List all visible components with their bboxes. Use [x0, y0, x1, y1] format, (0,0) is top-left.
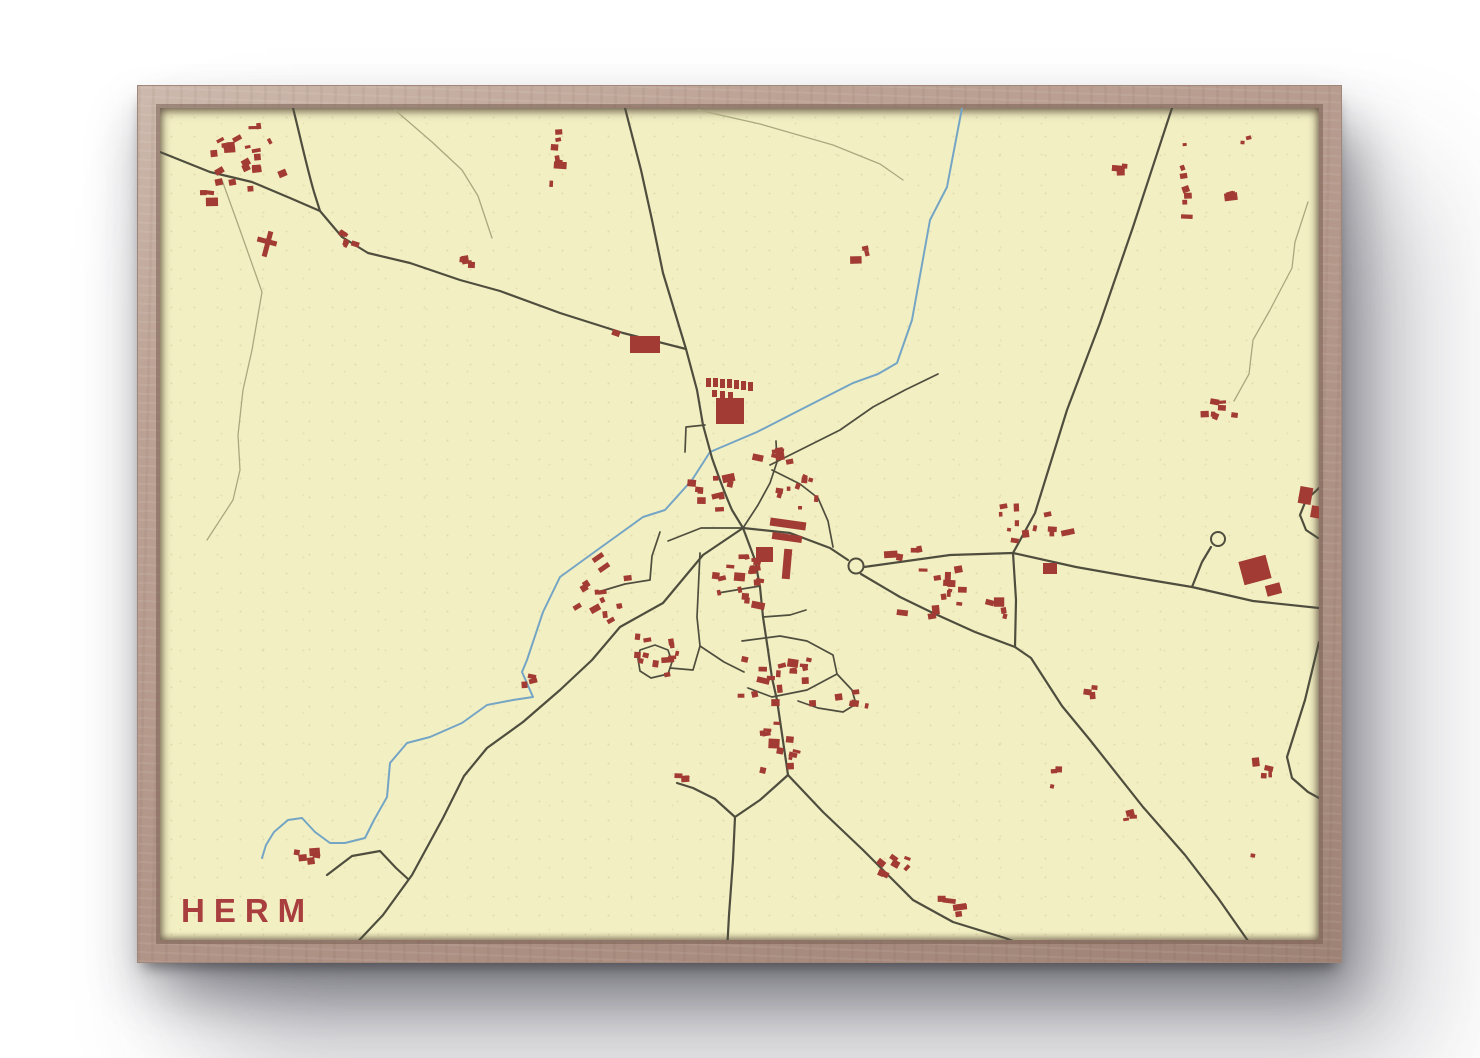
- building: [1298, 486, 1314, 505]
- building: [687, 479, 696, 487]
- building: [720, 391, 725, 398]
- building: [206, 197, 218, 206]
- building: [933, 575, 941, 581]
- building: [748, 382, 753, 391]
- building: [802, 677, 809, 684]
- building: [903, 864, 910, 871]
- building: [555, 129, 562, 135]
- building: [664, 672, 671, 677]
- building: [809, 700, 816, 707]
- main-road: [1013, 553, 1016, 647]
- building: [734, 380, 739, 389]
- building: [748, 570, 756, 574]
- building: [741, 593, 749, 600]
- building: [713, 378, 718, 387]
- building: [1181, 185, 1190, 193]
- building: [598, 562, 611, 573]
- village-street: [763, 610, 806, 617]
- building: [554, 161, 567, 169]
- building: [675, 651, 680, 657]
- building: [954, 565, 963, 573]
- building: [551, 144, 559, 151]
- building: [947, 590, 951, 597]
- building: [958, 587, 967, 593]
- minor-path: [207, 180, 262, 540]
- building: [741, 656, 749, 663]
- building: [1184, 193, 1192, 199]
- building: [786, 459, 794, 465]
- main-road: [625, 108, 743, 528]
- building: [713, 476, 719, 481]
- building: [896, 553, 903, 561]
- poster-frame: HERM: [137, 85, 1342, 963]
- building: [254, 153, 261, 160]
- building: [681, 775, 690, 782]
- building: [896, 609, 908, 616]
- building: [911, 548, 918, 553]
- minor-path: [1008, 939, 1168, 940]
- building: [773, 722, 780, 725]
- building: [741, 381, 746, 390]
- main-road: [1013, 108, 1172, 553]
- building: [1123, 817, 1129, 821]
- building: [216, 137, 224, 144]
- main-road: [327, 851, 408, 879]
- building: [245, 145, 251, 149]
- building: [351, 240, 360, 247]
- building: [1014, 503, 1020, 511]
- building: [928, 613, 937, 620]
- building: [850, 256, 862, 264]
- main-road: [677, 783, 735, 817]
- building: [1022, 530, 1030, 538]
- building: [1032, 525, 1037, 532]
- building: [835, 693, 843, 701]
- village-street: [697, 553, 744, 672]
- building: [776, 670, 781, 677]
- roundabout: [849, 559, 864, 574]
- building: [941, 593, 947, 600]
- building: [602, 611, 608, 618]
- building: [1043, 563, 1057, 574]
- building: [643, 637, 651, 642]
- building: [1231, 412, 1238, 418]
- building: [1182, 200, 1187, 205]
- building: [938, 896, 946, 902]
- building: [599, 597, 605, 604]
- building: [1180, 165, 1186, 171]
- town-map: [160, 108, 1319, 940]
- map-poster: HERM: [160, 108, 1319, 940]
- building: [1050, 784, 1055, 789]
- poster-title: HERM: [181, 894, 314, 927]
- building: [985, 599, 995, 607]
- building: [717, 590, 722, 596]
- building: [737, 586, 742, 593]
- building: [1240, 141, 1244, 145]
- building: [247, 186, 253, 192]
- building: [528, 673, 537, 679]
- building: [798, 506, 802, 510]
- building: [549, 181, 553, 187]
- building: [1122, 164, 1128, 169]
- building: [232, 134, 242, 143]
- building: [1218, 405, 1226, 411]
- building: [771, 699, 779, 706]
- river: [262, 108, 962, 858]
- building: [782, 549, 793, 580]
- building: [1310, 505, 1319, 519]
- building: [1180, 173, 1188, 179]
- building: [814, 495, 819, 502]
- building: [852, 689, 859, 694]
- building: [806, 657, 812, 662]
- village-street: [598, 532, 660, 592]
- building: [294, 849, 300, 855]
- main-road: [293, 108, 320, 211]
- minor-path: [698, 110, 903, 180]
- building: [1200, 411, 1208, 418]
- village-street: [685, 425, 705, 452]
- building: [1083, 689, 1092, 696]
- building: [770, 518, 807, 531]
- building: [554, 155, 560, 162]
- building: [572, 603, 581, 611]
- building: [606, 617, 615, 625]
- building: [1001, 607, 1007, 614]
- building: [790, 668, 797, 674]
- building: [947, 580, 955, 587]
- village-street: [770, 374, 938, 465]
- building: [298, 854, 307, 861]
- building: [720, 379, 725, 388]
- building: [1246, 135, 1252, 140]
- main-road: [861, 574, 1253, 940]
- building: [738, 694, 745, 698]
- building: [787, 658, 799, 668]
- building: [864, 250, 870, 257]
- building: [786, 736, 794, 743]
- building: [758, 667, 767, 672]
- building: [1183, 143, 1187, 146]
- building: [712, 390, 717, 397]
- building: [999, 503, 1007, 509]
- main-road: [1287, 642, 1319, 798]
- building: [214, 178, 223, 186]
- building: [734, 572, 746, 581]
- main-road: [160, 152, 686, 349]
- building: [634, 652, 641, 659]
- building: [787, 763, 794, 770]
- building: [1002, 613, 1007, 619]
- building: [668, 656, 676, 660]
- building: [1007, 528, 1012, 532]
- building: [309, 848, 320, 857]
- building: [1210, 398, 1220, 405]
- building: [642, 652, 649, 658]
- building: [994, 597, 1004, 606]
- building: [252, 148, 261, 153]
- building: [267, 138, 273, 145]
- building: [1117, 168, 1125, 175]
- building: [728, 392, 733, 399]
- building: [919, 568, 928, 571]
- building: [955, 911, 962, 917]
- building: [849, 700, 856, 706]
- building: [1261, 773, 1267, 779]
- photo-background: HERM: [0, 0, 1480, 1058]
- building: [1264, 765, 1274, 772]
- building: [248, 126, 257, 129]
- building: [210, 150, 217, 157]
- building: [589, 603, 601, 614]
- building: [864, 703, 868, 709]
- building: [1091, 685, 1097, 690]
- building: [595, 589, 600, 594]
- building: [1265, 582, 1282, 597]
- building: [1055, 766, 1062, 772]
- building: [1015, 520, 1019, 526]
- building: [1061, 528, 1075, 536]
- building: [638, 658, 644, 664]
- building: [999, 512, 1003, 517]
- building: [1049, 531, 1054, 536]
- building: [1250, 853, 1255, 857]
- building: [800, 664, 808, 668]
- building: [695, 487, 704, 493]
- building: [808, 477, 813, 482]
- building: [787, 487, 791, 491]
- roundabout: [1211, 532, 1225, 546]
- main-road: [788, 775, 1040, 940]
- main-road: [727, 775, 788, 940]
- building: [252, 165, 261, 172]
- building: [956, 602, 962, 606]
- building: [459, 257, 465, 263]
- building: [712, 572, 720, 580]
- building: [738, 554, 748, 559]
- building: [751, 601, 765, 611]
- building: [623, 575, 632, 581]
- minor-path: [1234, 202, 1308, 401]
- building: [1129, 815, 1137, 819]
- building: [635, 633, 641, 640]
- main-road: [350, 528, 743, 940]
- building: [652, 660, 659, 668]
- building: [1268, 771, 1272, 777]
- building: [228, 179, 236, 186]
- building: [1010, 538, 1019, 544]
- building: [277, 169, 287, 179]
- building: [1044, 511, 1052, 517]
- building: [884, 551, 898, 559]
- building: [1181, 214, 1193, 219]
- main-road: [743, 528, 788, 775]
- building: [205, 190, 214, 195]
- minor-path: [395, 110, 492, 238]
- building: [953, 903, 967, 911]
- building: [716, 398, 744, 424]
- building: [715, 507, 724, 512]
- main-road: [1192, 547, 1211, 587]
- building: [521, 681, 527, 688]
- building: [776, 747, 784, 755]
- building: [697, 497, 706, 504]
- building: [777, 448, 784, 453]
- building: [752, 453, 764, 462]
- building: [706, 378, 711, 387]
- building: [876, 858, 886, 868]
- building: [598, 589, 607, 594]
- building: [1252, 757, 1260, 767]
- building: [778, 662, 787, 668]
- building: [1238, 555, 1271, 585]
- building: [904, 856, 911, 861]
- building: [775, 453, 785, 461]
- building: [726, 564, 734, 568]
- building: [307, 857, 315, 865]
- building: [200, 190, 207, 195]
- building: [1224, 192, 1238, 201]
- building: [777, 684, 783, 693]
- building: [555, 137, 561, 142]
- building: [630, 336, 660, 353]
- building: [670, 642, 675, 648]
- building: [727, 379, 732, 388]
- building: [759, 767, 766, 774]
- building: [772, 449, 777, 454]
